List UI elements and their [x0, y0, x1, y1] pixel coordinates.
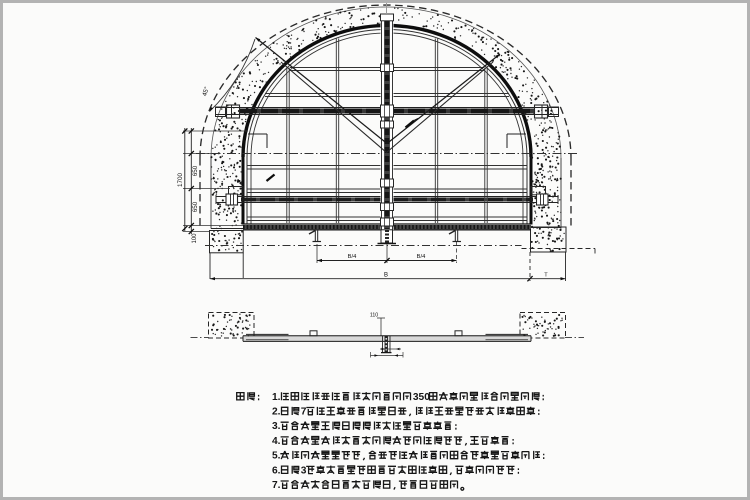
- svg-text:3: 3: [301, 465, 307, 476]
- svg-text:3.: 3.: [272, 421, 281, 432]
- svg-text:B/4: B/4: [417, 254, 426, 260]
- svg-text:4.: 4.: [272, 436, 281, 447]
- svg-text:6.: 6.: [272, 465, 281, 476]
- svg-text:7: 7: [301, 407, 307, 418]
- svg-text:B/4: B/4: [348, 254, 357, 260]
- svg-text:2.: 2.: [272, 407, 281, 418]
- svg-text:B: B: [384, 273, 388, 279]
- svg-text:650: 650: [192, 165, 199, 176]
- svg-text:1.: 1.: [272, 392, 281, 403]
- svg-text:350: 350: [413, 392, 430, 403]
- svg-text:5.: 5.: [272, 451, 281, 462]
- svg-text:110: 110: [370, 313, 378, 319]
- svg-text:7.: 7.: [272, 480, 281, 491]
- svg-text:100: 100: [192, 233, 198, 244]
- svg-text:1700: 1700: [177, 173, 184, 188]
- svg-text:T: T: [544, 273, 548, 279]
- svg-text:45°: 45°: [200, 85, 211, 97]
- svg-text:650: 650: [192, 201, 199, 212]
